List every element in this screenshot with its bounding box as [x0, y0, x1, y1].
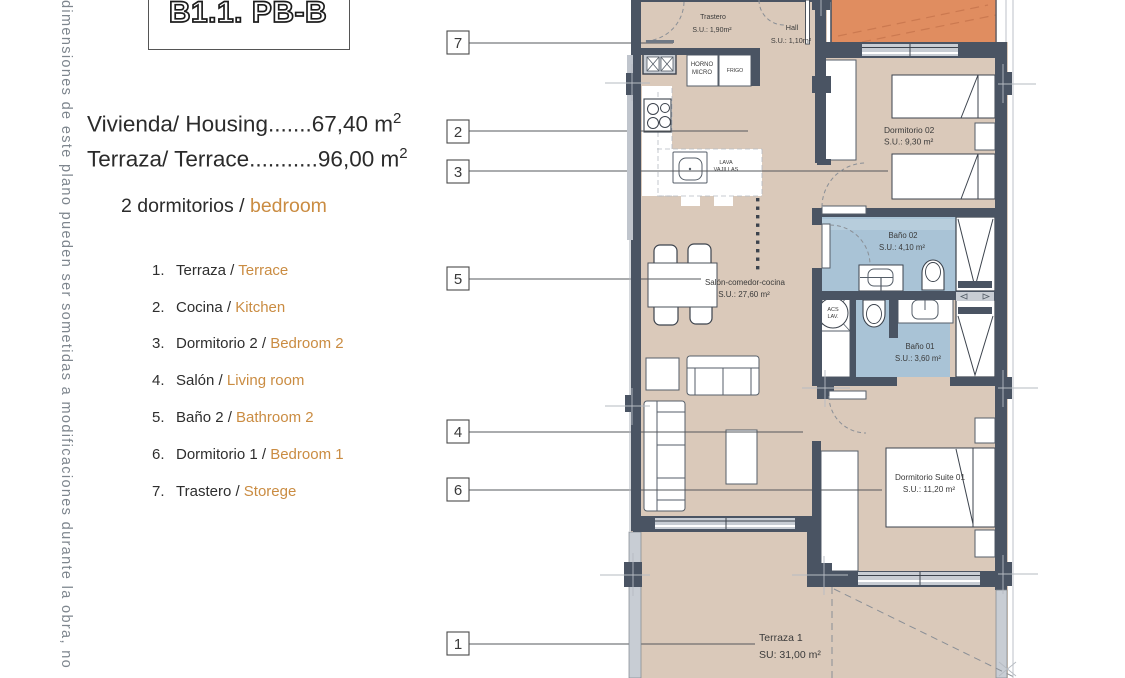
svg-text:LAV.: LAV. — [827, 314, 838, 320]
svg-text:Dormitorio 02: Dormitorio 02 — [884, 125, 935, 135]
svg-text:S.U.: 3,60 m²: S.U.: 3,60 m² — [895, 354, 941, 363]
svg-text:LAVA: LAVA — [719, 160, 733, 166]
svg-text:HORNO: HORNO — [691, 62, 714, 68]
svg-text:S.U.: 4,10 m²: S.U.: 4,10 m² — [879, 243, 925, 252]
svg-text:ACS: ACS — [827, 307, 839, 313]
svg-text:FRIGO: FRIGO — [727, 68, 743, 74]
svg-text:2: 2 — [454, 124, 462, 141]
svg-text:1: 1 — [454, 636, 462, 653]
svg-text:7: 7 — [454, 35, 462, 52]
svg-text:5: 5 — [454, 271, 462, 288]
svg-text:6: 6 — [454, 482, 462, 499]
svg-text:S.U.: 11,20 m²: S.U.: 11,20 m² — [903, 485, 955, 494]
svg-text:S.U.: 9,30 m²: S.U.: 9,30 m² — [884, 137, 934, 147]
svg-text:Baño 02: Baño 02 — [888, 231, 917, 240]
svg-text:4: 4 — [454, 424, 462, 441]
svg-text:Salón-comedor-cocina: Salón-comedor-cocina — [705, 278, 786, 287]
svg-text:Baño 01: Baño 01 — [905, 342, 934, 351]
svg-text:Terraza 1: Terraza 1 — [759, 632, 803, 644]
svg-text:SU: 31,00 m²: SU: 31,00 m² — [759, 649, 821, 661]
svg-text:3: 3 — [454, 164, 462, 181]
svg-text:Dormitorio Suite 01: Dormitorio Suite 01 — [895, 473, 966, 482]
svg-text:Trastero: Trastero — [700, 14, 726, 21]
svg-text:S.U.: 1,10m²: S.U.: 1,10m² — [771, 36, 812, 45]
svg-text:S.U.: 1,90m²: S.U.: 1,90m² — [692, 27, 732, 34]
svg-text:Hall: Hall — [786, 23, 799, 32]
svg-text:VAJILLAS: VAJILLAS — [714, 167, 739, 173]
svg-text:S.U.: 27,60 m²: S.U.: 27,60 m² — [718, 290, 770, 299]
svg-text:MICRO: MICRO — [692, 70, 712, 76]
